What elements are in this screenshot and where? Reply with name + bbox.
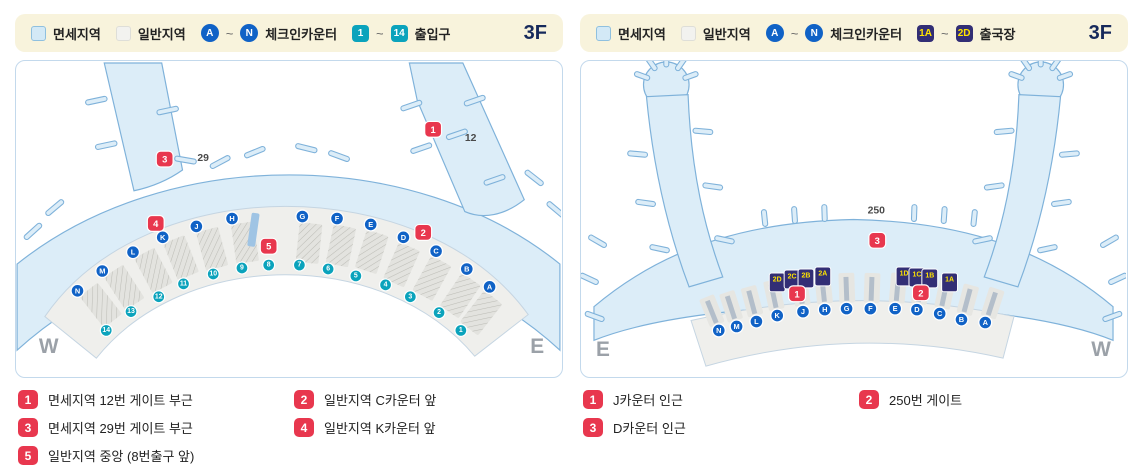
location-badge-1: 1 [789,286,806,302]
departure-badge: 2B [798,269,814,288]
svg-text:K: K [775,311,781,320]
location-badge-2: 2 [415,224,432,240]
svg-text:N: N [75,286,80,295]
tilde: ~ [376,26,384,41]
svg-text:G: G [299,212,305,221]
gate-250-label: 250 [868,206,886,217]
list-badge: 1 [18,390,38,409]
svg-text:7: 7 [297,262,301,269]
svg-text:F: F [335,214,340,223]
counter-marker: C [430,245,443,258]
svg-text:9: 9 [240,265,244,272]
counter-marker: B [955,313,968,326]
exit-marker: 4 [380,279,392,291]
svg-text:14: 14 [102,327,110,334]
gate-stub [1051,199,1071,207]
list-item: 2250번 게이트 [859,390,1128,409]
gate-stub [1038,61,1043,67]
general-label: 일반지역 [703,24,751,43]
gate-stub [588,234,608,248]
exit-marker: 6 [322,263,334,275]
gate-stub [994,128,1014,135]
west-pier-stem [984,95,1060,287]
gate-stub [85,96,107,105]
counter-marker: F [864,302,877,315]
counter-marker: N [71,284,84,297]
svg-text:H: H [229,214,234,223]
list-item: 2일반지역 C카운터 앞 [294,390,563,409]
gate-stub [524,169,544,186]
svg-text:G: G [844,304,850,313]
svg-text:8: 8 [267,262,271,269]
list-badge: 2 [294,390,314,409]
svg-text:D: D [914,305,920,314]
general-swatch [116,26,131,41]
terminal2-panel: 면세지역 일반지역 A ~ N 체크인카운터 1A ~ 2D 출국장 3F [580,14,1128,437]
counter-n-chip: N [240,24,258,42]
east-label: E [530,335,544,358]
gate-stub [581,272,599,285]
counter-marker: N [712,324,725,337]
gate-stub [628,151,648,158]
svg-text:L: L [754,317,759,326]
exit-marker: 2 [433,307,445,319]
west-concourse-pier [104,63,182,191]
svg-text:H: H [822,305,827,314]
general-label: 일반지역 [138,24,186,43]
svg-text:F: F [868,304,873,313]
svg-text:2C: 2C [788,273,797,280]
counter-marker: L [127,246,140,259]
list-badge: 1 [583,390,603,409]
svg-text:1D: 1D [900,270,909,277]
counter-marker: H [226,212,239,225]
gate-14-chip: 14 [391,25,408,42]
list-text: 일반지역 중앙 (8번출구 앞) [48,446,194,465]
tilde: ~ [941,26,949,41]
gate-stub [761,209,768,226]
gate-label: 출입구 [415,24,451,43]
gate-stub [791,206,797,223]
west-label: W [39,335,59,358]
list-badge: 3 [583,418,603,437]
list-badge: 5 [18,446,38,465]
svg-text:3: 3 [408,293,412,300]
svg-text:M: M [99,267,105,276]
svg-text:2: 2 [437,309,441,316]
svg-text:1C: 1C [912,271,921,278]
exit-marker: 11 [178,278,190,290]
terminal1-panel: 면세지역 일반지역 A ~ N 체크인카운터 1 ~ 14 출입구 3F [15,14,563,465]
counter-marker: A [979,316,992,329]
svg-text:2B: 2B [802,272,811,279]
exit-marker: 14 [100,324,112,336]
svg-text:1: 1 [459,327,463,334]
gate-stub [822,205,828,222]
svg-text:10: 10 [209,270,217,277]
departure-label: 출국장 [980,24,1016,43]
departure-badge: 2D [769,273,785,292]
svg-text:C: C [937,309,943,318]
counter-a-chip: A [201,24,219,42]
counter-marker: F [331,212,344,225]
tilde: ~ [226,26,234,41]
location-badge-3: 3 [869,232,886,248]
counter-marker: H [818,303,831,316]
svg-text:4: 4 [384,281,388,288]
list-item: 1J카운터 인근 [583,390,859,409]
east-pier-stem [646,95,722,287]
svg-text:1: 1 [794,288,799,299]
list-badge: 2 [859,390,879,409]
checkin-island [296,222,323,264]
gate-stub [649,244,669,253]
svg-text:N: N [716,326,721,335]
floor-label: 3F [1089,22,1112,45]
gate-stub [703,183,723,191]
counter-marker: B [460,263,473,276]
list-text: 250번 게이트 [889,390,962,409]
svg-text:2D: 2D [773,276,782,283]
location-list-right: 1J카운터 인근 2250번 게이트 3D카운터 인근 [580,390,1128,437]
general-swatch [681,26,696,41]
list-item: 3D카운터 인근 [583,418,859,437]
svg-text:5: 5 [266,241,271,252]
terminal1-map-svg: N M L K J H G F E D C B A 14 13 12 11 10… [16,61,561,376]
gate-stub [941,206,947,223]
terminal1-map: N M L K J H G F E D C B A 14 13 12 11 10… [15,60,563,378]
exit-marker: 10 [207,268,219,280]
exit-marker: 12 [153,291,165,303]
list-text: J카운터 인근 [613,390,683,409]
departure-badge: 2A [815,267,831,286]
list-item: 4일반지역 K카운터 앞 [294,418,563,437]
list-text: 일반지역 K카운터 앞 [324,418,436,437]
exit-marker: 3 [404,291,416,303]
counter-marker: J [190,220,203,233]
checkin-island [838,273,855,303]
gate-12-label: 12 [465,133,477,144]
svg-text:J: J [194,222,198,231]
gate-stub [635,199,655,207]
list-item: 1면세지역 12번 게이트 부근 [18,390,294,409]
location-badge-2: 2 [912,285,929,301]
terminal2-map: 2D 2C 2B 2A 1D 1C 1B 1A N M L K J H G F … [580,60,1128,378]
gate-1-chip: 1 [352,25,369,42]
svg-text:1B: 1B [925,272,934,279]
exit-marker: 9 [236,262,248,274]
list-text: 일반지역 C카운터 앞 [324,390,436,409]
svg-text:C: C [433,247,439,256]
svg-text:J: J [801,307,805,316]
svg-text:A: A [487,282,493,291]
svg-text:2: 2 [918,287,923,298]
svg-text:K: K [160,233,166,242]
counter-marker: M [96,265,109,278]
list-badge: 4 [294,418,314,437]
east-label: E [596,338,610,361]
counter-marker: D [397,231,410,244]
svg-text:12: 12 [155,293,163,300]
list-item: 5일반지역 중앙 (8번출구 앞) [18,446,294,465]
dutyfree-label: 면세지역 [618,24,666,43]
svg-text:B: B [959,315,965,324]
gate-stub [1108,272,1126,285]
gate-stub [400,100,422,112]
counter-a-chip: A [766,24,784,42]
checkin-island [864,273,881,303]
svg-text:3: 3 [875,235,880,246]
counter-marker: K [156,231,169,244]
svg-text:E: E [893,304,898,313]
gate-stub [244,146,266,159]
gate-stub [23,222,43,240]
dutyfree-swatch [31,26,46,41]
gate-stub [328,150,350,162]
location-list-left: 1면세지역 12번 게이트 부근 2일반지역 C카운터 앞 3면세지역 29번 … [15,390,563,465]
gate-stub [410,142,432,154]
counter-marker: J [797,305,810,318]
svg-text:1: 1 [431,124,436,135]
counter-marker: L [750,315,763,328]
gate-stub [546,201,561,219]
list-text: 면세지역 29번 게이트 부근 [48,418,193,437]
tilde: ~ [791,26,799,41]
svg-text:2A: 2A [818,270,827,277]
svg-text:5: 5 [354,272,358,279]
svg-text:B: B [464,265,470,274]
gate-29-label: 29 [197,153,209,164]
counter-marker: C [933,307,946,320]
exit-marker: 13 [125,306,137,318]
gate-stub [45,199,65,217]
departure-2d-chip: 2D [956,25,973,42]
counter-marker: G [840,302,853,315]
gate-stub [95,141,117,150]
svg-text:4: 4 [153,218,159,229]
gate-stub [693,128,713,135]
dutyfree-label: 면세지역 [53,24,101,43]
counter-label: 체크인카운터 [830,24,902,43]
legend-left: 면세지역 일반지역 A ~ N 체크인카운터 1 ~ 14 출입구 3F [15,14,563,52]
floor-label: 3F [524,22,547,45]
exit-marker: 1 [455,324,467,336]
counter-marker: G [296,210,309,223]
departure-badge: 1A [942,273,958,292]
departure-1a-chip: 1A [917,25,934,42]
counter-marker: M [730,320,743,333]
gate-stub [664,61,669,67]
counter-marker: E [364,218,377,231]
gate-stub [911,205,917,222]
gate-stub [209,155,231,170]
list-item: 3면세지역 29번 게이트 부근 [18,418,294,437]
location-badge-3: 3 [156,151,173,167]
gate-stub [1037,244,1057,253]
location-badge-4: 4 [147,216,164,232]
location-badge-5: 5 [260,238,277,254]
gate-stub [971,209,978,226]
counter-marker: D [910,303,923,316]
list-badge: 3 [18,418,38,437]
gate-stub [1059,151,1079,158]
counter-marker: E [889,302,902,315]
svg-text:E: E [368,220,373,229]
dutyfree-swatch [596,26,611,41]
svg-text:13: 13 [127,308,135,315]
counter-label: 체크인카운터 [265,24,337,43]
counter-marker: K [771,309,784,322]
counter-n-chip: N [805,24,823,42]
list-text: D카운터 인근 [613,418,686,437]
exit-marker: 7 [293,259,305,271]
exit-marker: 8 [263,259,275,271]
svg-text:2: 2 [421,227,426,238]
svg-text:D: D [401,233,407,242]
svg-text:11: 11 [180,280,187,287]
terminal2-map-svg: 2D 2C 2B 2A 1D 1C 1B 1A N M L K J H G F … [581,61,1126,376]
gate-stub [1100,234,1120,248]
list-text: 면세지역 12번 게이트 부근 [48,390,193,409]
west-label: W [1091,338,1111,361]
location-badge-1: 1 [425,121,442,137]
exit-marker: 5 [350,270,362,282]
gate-stub [295,143,317,153]
svg-text:L: L [131,248,136,257]
svg-text:A: A [983,318,989,327]
svg-text:3: 3 [162,154,167,165]
legend-right: 면세지역 일반지역 A ~ N 체크인카운터 1A ~ 2D 출국장 3F [580,14,1128,52]
gate-stub [984,183,1004,191]
counter-marker: A [483,280,496,293]
svg-text:6: 6 [326,266,330,273]
svg-text:M: M [734,322,740,331]
svg-text:1A: 1A [945,276,954,283]
